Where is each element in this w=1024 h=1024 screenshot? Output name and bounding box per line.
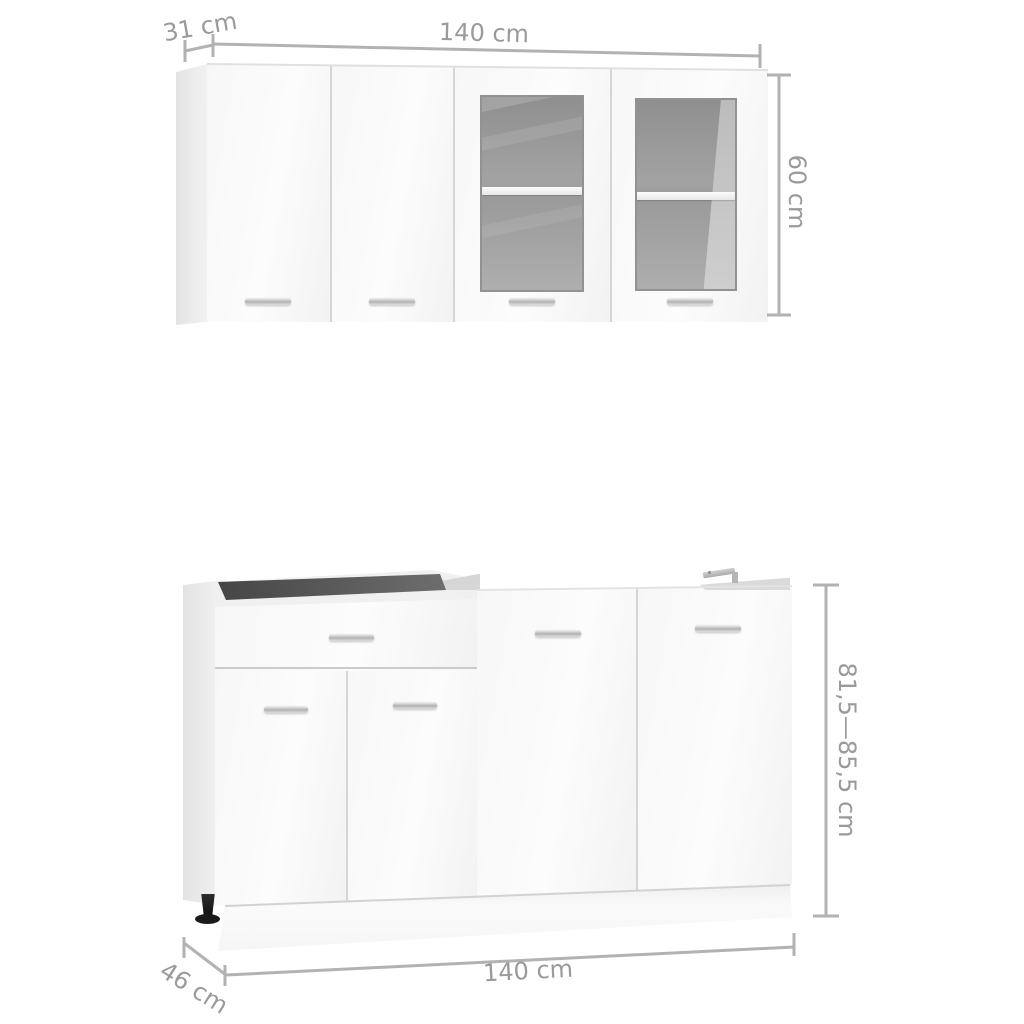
bracket-tab — [732, 572, 738, 583]
door-handle — [509, 298, 555, 305]
wall-cabinet-door-1 — [207, 62, 330, 322]
wall-cabinet — [207, 62, 768, 322]
door-handle — [369, 298, 415, 305]
base-cabinet-door-2 — [638, 586, 792, 896]
base-height-label: 81,5—85,5 cm — [833, 645, 861, 855]
base-cabinet-right-front — [477, 586, 792, 896]
wall-depth-label: 31 cm — [153, 5, 246, 48]
glass-shelf — [482, 187, 582, 195]
door-handle — [245, 298, 291, 305]
product-dimension-image: 31 cm 140 cm 60 cm 81,5—85,5 cm 46 cm 14… — [0, 0, 1024, 1024]
glass-panel-left — [480, 95, 584, 292]
door-handle — [535, 630, 581, 637]
drawer-gap — [215, 667, 477, 669]
dim-31-line — [185, 45, 213, 51]
bracket-hole — [708, 571, 711, 574]
glass-shelf — [637, 192, 735, 200]
wall-height-label: 60 cm — [783, 137, 811, 247]
door-handle — [264, 706, 308, 713]
door-handle — [695, 625, 741, 632]
adjustable-foot — [195, 894, 221, 924]
base-depth-label: 46 cm — [148, 952, 239, 1023]
wall-cabinet-door-2 — [332, 62, 453, 322]
foot-base — [195, 914, 220, 924]
door-handle — [667, 298, 713, 305]
wall-cabinet-side-panel — [176, 64, 207, 325]
wall-mount-bracket — [703, 565, 739, 585]
drawer-front — [215, 598, 477, 667]
door-handle — [393, 702, 437, 709]
glass-panel-right — [635, 98, 737, 291]
sink-cabinet-front — [215, 598, 477, 908]
base-width-label: 140 cm — [462, 954, 593, 989]
drawer-handle — [329, 634, 374, 641]
wall-width-label: 140 cm — [419, 17, 550, 48]
